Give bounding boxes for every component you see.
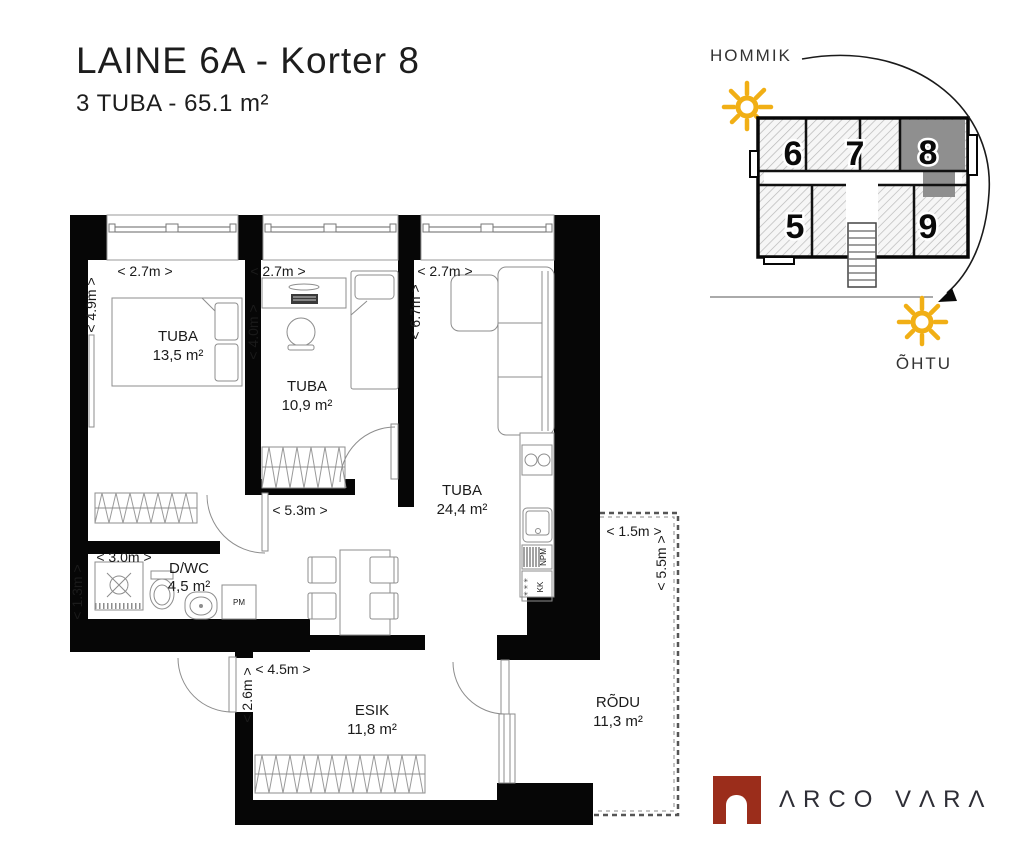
wardrobe-hallway — [255, 755, 425, 793]
dim-room2-width: < 2.7m > — [250, 263, 305, 279]
window-room2 — [263, 215, 398, 260]
dim-room1-width: < 2.7m > — [117, 263, 172, 279]
dim-esik-height: < 2.6m > — [239, 667, 255, 722]
entrance-door — [178, 657, 236, 712]
dining-set — [308, 550, 398, 635]
window-room1 — [107, 215, 238, 260]
dim-room3-height: < 6.7m > — [407, 284, 423, 339]
page-subtitle: 3 TUBA - 65.1 m² — [76, 90, 420, 118]
dishwasher-label: NPM — [539, 548, 548, 566]
page-title: LAINE 6A - Korter 8 — [76, 40, 420, 82]
header: LAINE 6A - Korter 8 3 TUBA - 65.1 m² — [76, 40, 420, 118]
dim-room1-height: < 4.9m > — [83, 277, 99, 332]
washing-machine: PM — [222, 585, 256, 619]
esik-area: 11,8 m² — [347, 721, 397, 738]
dim-hall-width: < 5.3m > — [272, 502, 327, 518]
evening-label: ÕHTU — [896, 354, 952, 373]
wardrobe-bedroom2 — [262, 447, 346, 488]
unit-7: 7 — [846, 135, 865, 173]
bedroom2-furniture — [262, 271, 398, 389]
kitchen: NPM ✳ ✳ ✳ KK — [520, 433, 554, 601]
esik-name: ESIK — [355, 702, 389, 719]
room2-area: 10,9 m² — [282, 397, 333, 414]
arch-icon — [713, 776, 761, 824]
bathroom-sink — [185, 592, 217, 619]
dim-dwc-height: < 1.3m > — [69, 564, 85, 619]
rodu-name: RÕDU — [596, 694, 640, 711]
dwc-area: 4,5 m² — [168, 578, 211, 595]
fridge-symbols: ✳ ✳ ✳ — [523, 578, 530, 596]
living-sofa — [451, 267, 554, 435]
room1-area: 13,5 m² — [153, 347, 204, 364]
building-plan: 6 7 8 5 9 — [750, 118, 977, 287]
page: LAINE 6A - Korter 8 3 TUBA - 65.1 m² — [0, 0, 1024, 866]
dim-room2-height: < 4.0m > — [245, 304, 261, 359]
wardrobe-bedroom1 — [95, 493, 197, 523]
dim-dwc-width: < 3.0m > — [96, 549, 151, 565]
bedroom2-door — [340, 424, 398, 482]
brand-logo: ΛRCO VΛRΛ — [713, 776, 992, 824]
unit-6: 6 — [784, 135, 803, 173]
windows — [107, 215, 554, 260]
sun-evening-icon — [899, 298, 946, 344]
room2-name: TUBA — [287, 378, 327, 395]
fridge-label: KK — [536, 581, 545, 592]
stairs — [848, 223, 876, 287]
washing-machine-label: PM — [233, 598, 245, 607]
brand-name: ΛRCO VΛRΛ — [779, 786, 992, 814]
morning-label: HOMMIK — [710, 46, 792, 65]
room3-area: 24,4 m² — [437, 501, 488, 518]
room1-name: TUBA — [158, 328, 198, 345]
floor-plan: NPM ✳ ✳ ✳ KK — [62, 205, 692, 845]
arrow-head — [938, 288, 957, 302]
shower — [95, 562, 143, 610]
room3-name: TUBA — [442, 482, 482, 499]
unit-5: 5 — [786, 208, 805, 246]
unit-8: 8 — [919, 134, 938, 172]
balcony-door — [453, 660, 515, 783]
dwc-name: D/WC — [169, 560, 209, 577]
dim-esik-width: < 4.5m > — [255, 661, 310, 677]
window-room3 — [421, 215, 554, 260]
dim-rodu-height: < 5.5m > — [653, 535, 669, 590]
dim-room3-width: < 2.7m > — [417, 263, 472, 279]
site-plan: HOMMIK — [690, 25, 1010, 375]
rodu-area: 11,3 m² — [593, 713, 643, 730]
unit-9: 9 — [919, 208, 938, 246]
